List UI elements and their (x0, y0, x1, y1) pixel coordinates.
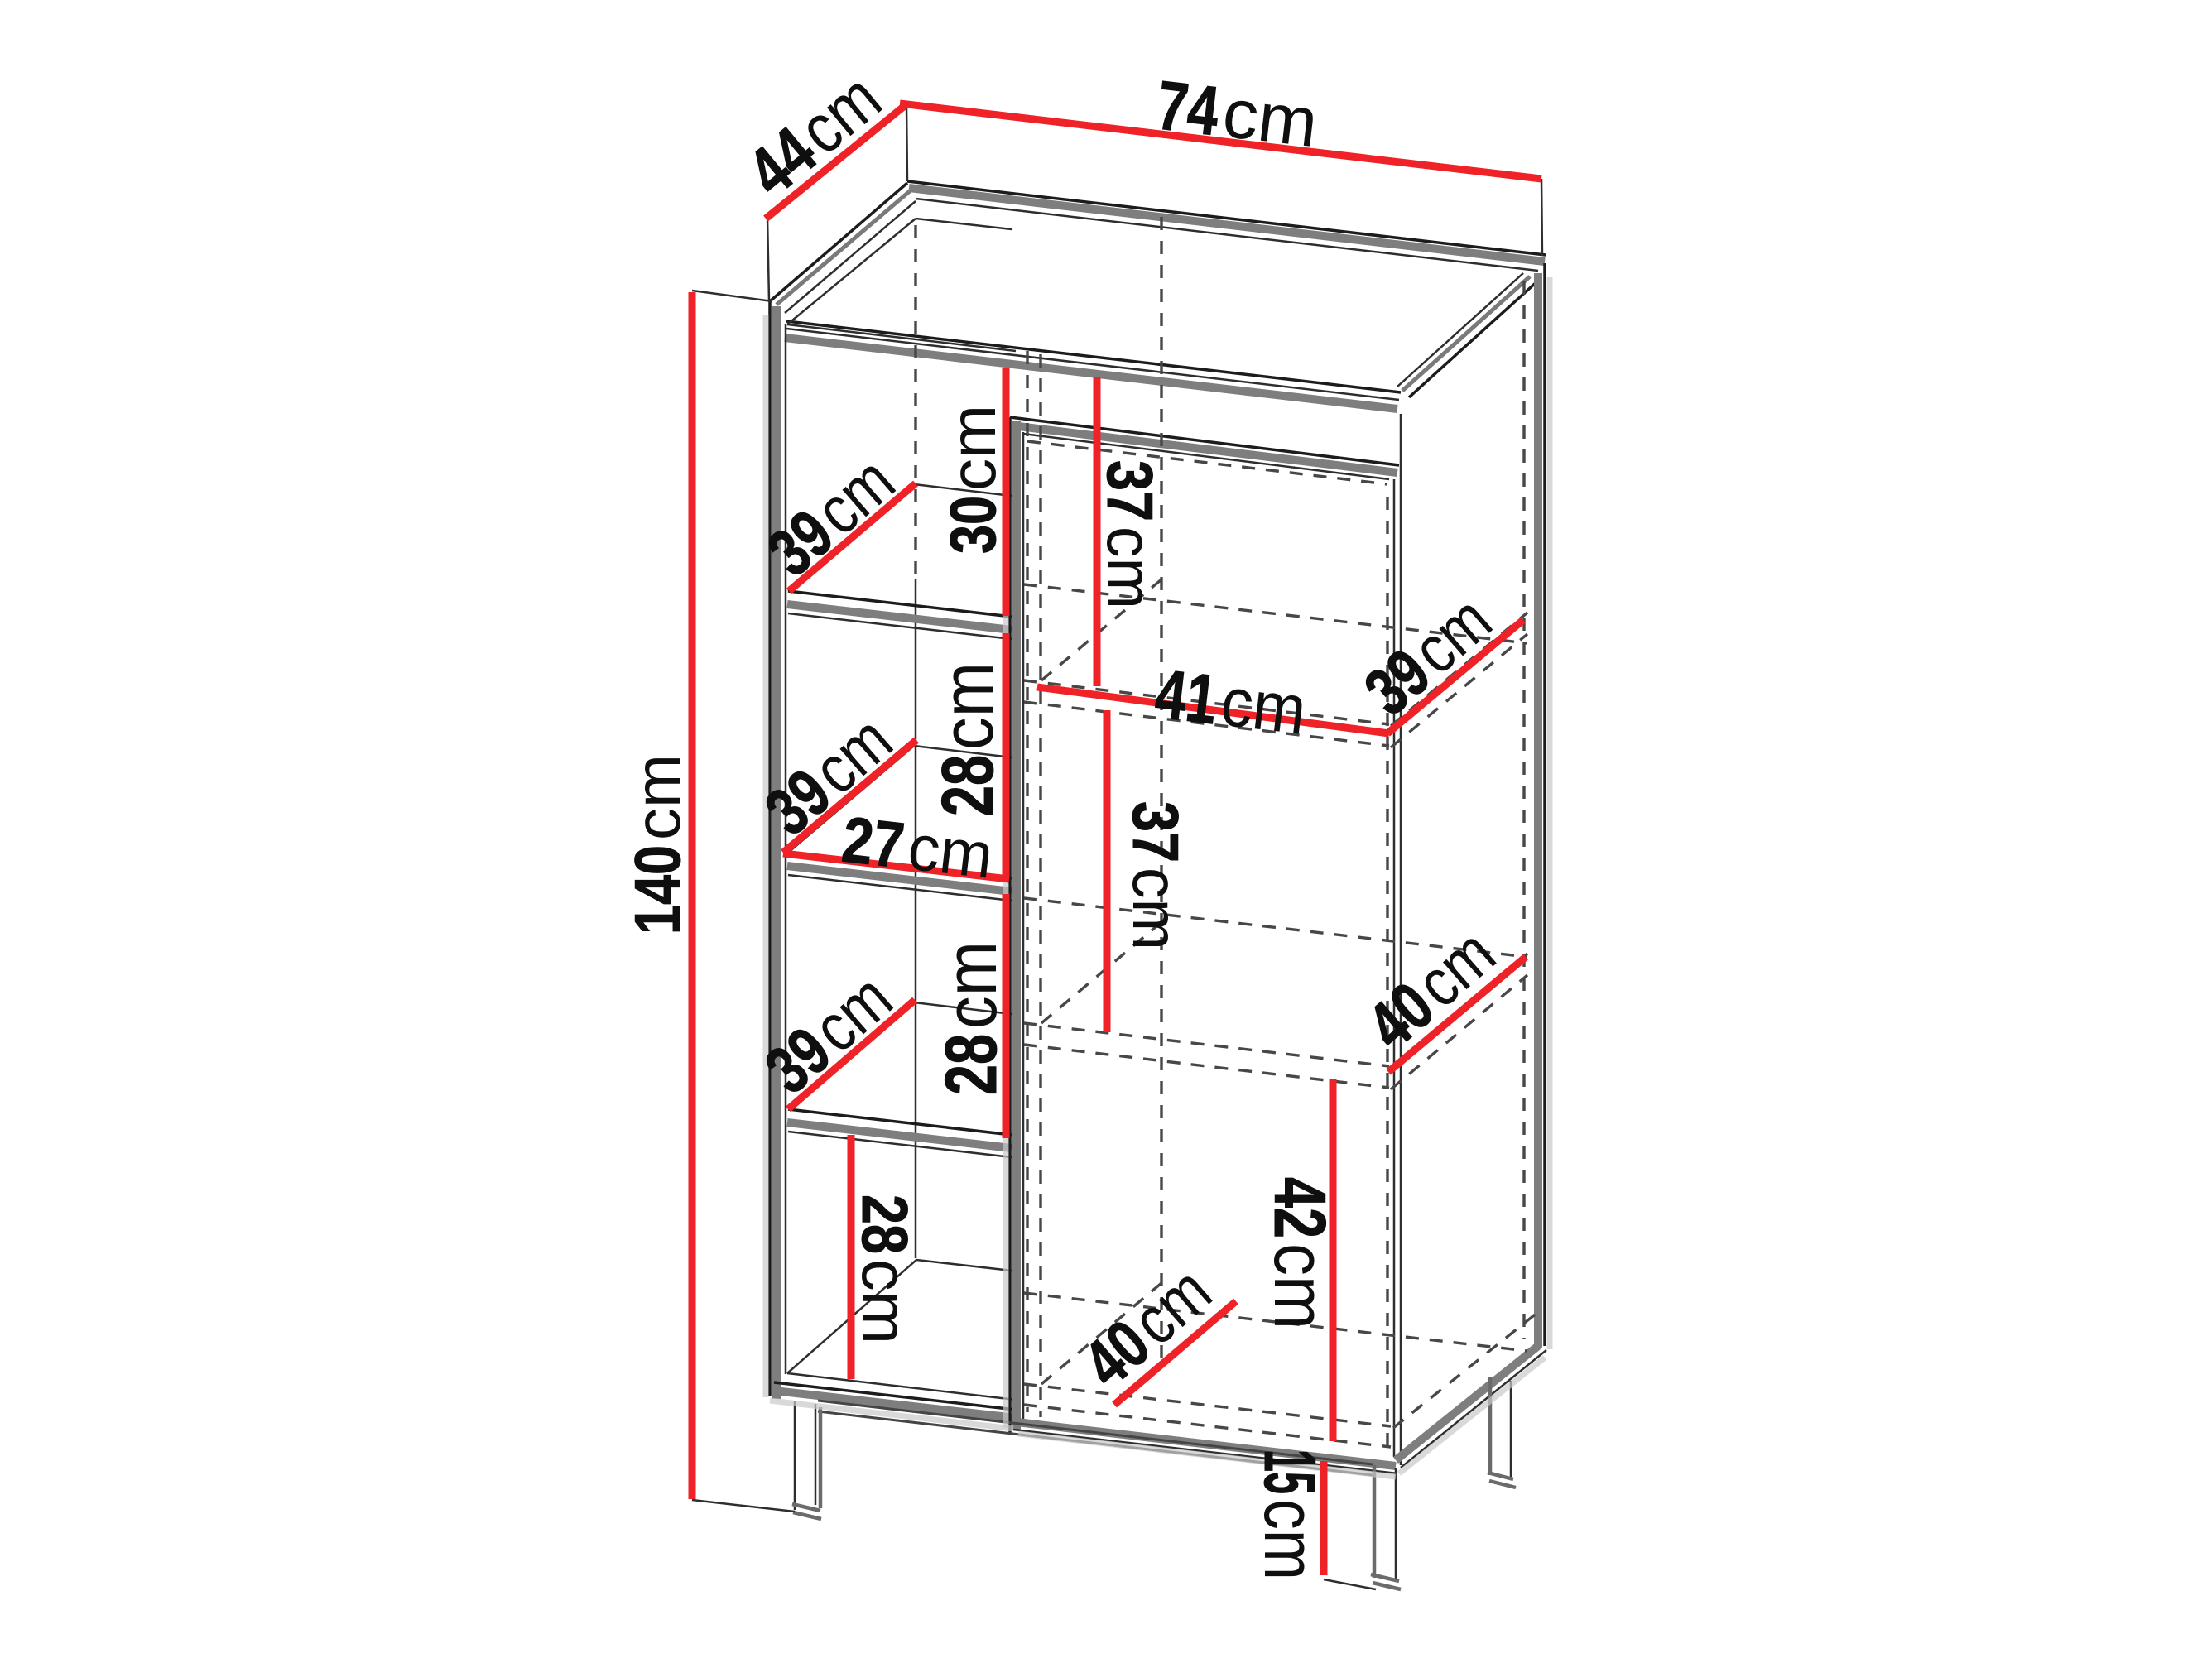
svg-text:15: 15 (1249, 1449, 1331, 1494)
svg-text:140: 140 (621, 845, 694, 935)
svg-text:cm: cm (930, 941, 1012, 1029)
svg-text:cm: cm (905, 810, 997, 892)
svg-text:74: 74 (1153, 66, 1224, 151)
svg-text:28: 28 (930, 1034, 1012, 1095)
svg-text:37: 37 (1094, 460, 1166, 521)
svg-text:cm: cm (849, 1259, 921, 1344)
svg-text:cm: cm (936, 405, 1009, 491)
svg-text:30: 30 (936, 496, 1009, 554)
svg-text:cm: cm (1217, 662, 1310, 749)
svg-text:41: 41 (1152, 655, 1221, 739)
svg-text:37: 37 (1119, 801, 1192, 863)
svg-text:28: 28 (926, 755, 1008, 816)
svg-text:cm: cm (1094, 526, 1166, 609)
svg-text:cm: cm (1249, 1499, 1331, 1580)
svg-text:42: 42 (1259, 1177, 1341, 1238)
svg-text:cm: cm (1219, 74, 1321, 161)
svg-text:28: 28 (849, 1194, 921, 1254)
svg-text:cm: cm (1119, 868, 1192, 950)
svg-text:cm: cm (1259, 1243, 1341, 1329)
svg-text:cm: cm (621, 754, 694, 840)
svg-text:27: 27 (839, 802, 908, 882)
svg-text:cm: cm (926, 662, 1008, 750)
